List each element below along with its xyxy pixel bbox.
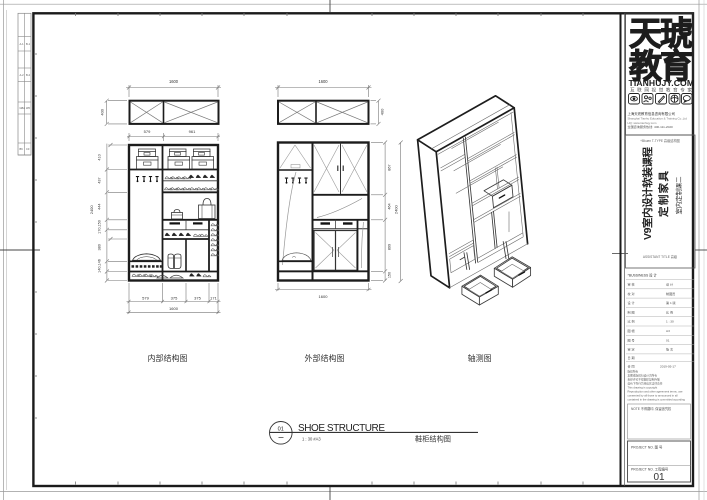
svg-text:PROJECT NO. 图 号: PROJECT NO. 图 号 <box>631 445 663 450</box>
svg-text:444: 444 <box>97 204 101 210</box>
svg-text:本图纸版权归设计方所有: 本图纸版权归设计方所有 <box>628 374 658 378</box>
svg-text:2400: 2400 <box>393 204 398 214</box>
svg-text:2400: 2400 <box>89 205 94 215</box>
svg-text:410: 410 <box>97 154 101 160</box>
svg-text:HQ: www.tianhujy.com: HQ: www.tianhujy.com <box>628 121 657 125</box>
svg-text:设 计: 设 计 <box>628 300 635 305</box>
svg-text:171: 171 <box>210 295 217 300</box>
svg-text:制图员: 制图员 <box>666 291 675 296</box>
svg-text:400: 400 <box>99 108 104 115</box>
svg-text:日 期: 日 期 <box>628 355 635 360</box>
svg-text:899: 899 <box>388 244 392 250</box>
svg-text:01: 01 <box>666 338 670 342</box>
svg-text:01: 01 <box>278 426 284 432</box>
svg-text:室内定制课二: 室内定制课二 <box>674 176 683 215</box>
svg-text:鞋柜结构图: 鞋柜结构图 <box>415 435 451 444</box>
svg-text:天琥: 天琥 <box>629 15 693 52</box>
svg-text:合 同: 合 同 <box>628 364 635 369</box>
svg-text:1600: 1600 <box>169 79 179 84</box>
svg-text:审 核: 审 核 <box>628 282 635 287</box>
svg-text:审 定: 审 定 <box>628 347 635 352</box>
svg-text:未经许可不得翻印复制传播: 未经许可不得翻印复制传播 <box>628 378 661 382</box>
svg-text:C0: C0 <box>26 147 30 151</box>
svg-text:B6: B6 <box>20 147 24 151</box>
svg-text:SHOE STRUCTURE: SHOE STRUCTURE <box>298 423 385 434</box>
svg-text:轴测图: 轴测图 <box>468 353 492 363</box>
svg-text:ASSISTANT TITLE 高级: ASSISTANT TITLE 高级 <box>643 254 678 259</box>
svg-text:380: 380 <box>97 244 101 250</box>
svg-text:A-1: A-1 <box>20 42 25 46</box>
svg-text:TIANHUJY.COM: TIANHUJY.COM <box>629 78 695 88</box>
svg-text:1600: 1600 <box>319 294 329 299</box>
svg-text:375: 375 <box>171 295 178 300</box>
svg-text:Reproduction and other agreeme: Reproduction and other agreement terms, … <box>628 390 683 394</box>
svg-text:*BUSSINESS 设 计: *BUSSINESS 设 计 <box>628 273 658 278</box>
svg-text:第 1 版: 第 1 版 <box>666 300 676 305</box>
svg-text:A3: A3 <box>666 329 670 333</box>
svg-text:2019-05-17: 2019-05-17 <box>660 365 676 369</box>
svg-text:01: 01 <box>653 472 665 483</box>
svg-text:如有下列行为将追究法律责任: 如有下列行为将追究法律责任 <box>628 382 663 386</box>
svg-text:375: 375 <box>194 295 201 300</box>
svg-text:A-2: A-2 <box>20 73 25 77</box>
svg-text:PROJECT NO. 工程编号: PROJECT NO. 工程编号 <box>631 467 669 472</box>
svg-text:+Bkuen T-TYPE 高级结构图: +Bkuen T-TYPE 高级结构图 <box>640 138 680 143</box>
svg-text:consented by all those to anno: consented by all those to announced in a… <box>628 394 678 398</box>
svg-text:This drawing is copyright: This drawing is copyright <box>628 386 658 390</box>
svg-text:W6: W6 <box>26 106 30 110</box>
svg-text:170,150: 170,150 <box>97 220 101 234</box>
svg-text:全国咨询服务热线: 400-111-2020: 全国咨询服务热线: 400-111-2020 <box>628 124 674 129</box>
svg-text:1600: 1600 <box>318 79 328 84</box>
svg-text:校 对: 校 对 <box>628 291 635 296</box>
svg-text:版权所有: 版权所有 <box>628 370 639 374</box>
svg-text:互联网视觉教育专家: 互联网视觉教育专家 <box>630 86 692 93</box>
svg-text:437: 437 <box>97 177 101 183</box>
svg-text:外部结构图: 外部结构图 <box>305 353 345 363</box>
svg-text:GBA: GBA <box>20 106 26 110</box>
svg-text:制 图: 制 图 <box>628 309 635 314</box>
svg-text:B-1: B-1 <box>26 42 31 46</box>
svg-text:内部结构图: 内部结构图 <box>148 353 188 363</box>
svg-text:867: 867 <box>388 164 392 170</box>
svg-text:961: 961 <box>189 129 196 134</box>
svg-text:设 计: 设 计 <box>666 282 673 287</box>
svg-text:464: 464 <box>388 203 392 209</box>
svg-text:图 号: 图 号 <box>628 337 635 342</box>
svg-text:1 : 30 #A3: 1 : 30 #A3 <box>302 437 321 442</box>
svg-text:150: 150 <box>388 272 392 278</box>
svg-text:比 例: 比 例 <box>628 319 635 324</box>
svg-text:上海天琥教育信息咨询有限公司: 上海天琥教育信息咨询有限公司 <box>628 111 675 116</box>
svg-text:比 例: 比 例 <box>666 309 673 314</box>
svg-text:contained in the drawing is co: contained in the drawing is committed ac… <box>628 398 686 402</box>
svg-text:图 幅: 图 幅 <box>628 328 635 333</box>
svg-text:140,146: 140,146 <box>97 259 101 273</box>
svg-text:400: 400 <box>380 108 385 115</box>
svg-text:定制家具: 定制家具 <box>657 171 670 219</box>
svg-text:版 次: 版 次 <box>666 347 673 352</box>
svg-text:1 : 30: 1 : 30 <box>666 320 674 324</box>
svg-text:V9室内设计软装课程: V9室内设计软装课程 <box>641 147 654 241</box>
svg-text:1600: 1600 <box>169 306 179 311</box>
svg-text:B-2: B-2 <box>26 73 31 77</box>
svg-text:579: 579 <box>142 295 149 300</box>
svg-text:NOTE 不得翻印, 保留追究权: NOTE 不得翻印, 保留追究权 <box>631 406 672 411</box>
svg-text:579: 579 <box>144 129 151 134</box>
